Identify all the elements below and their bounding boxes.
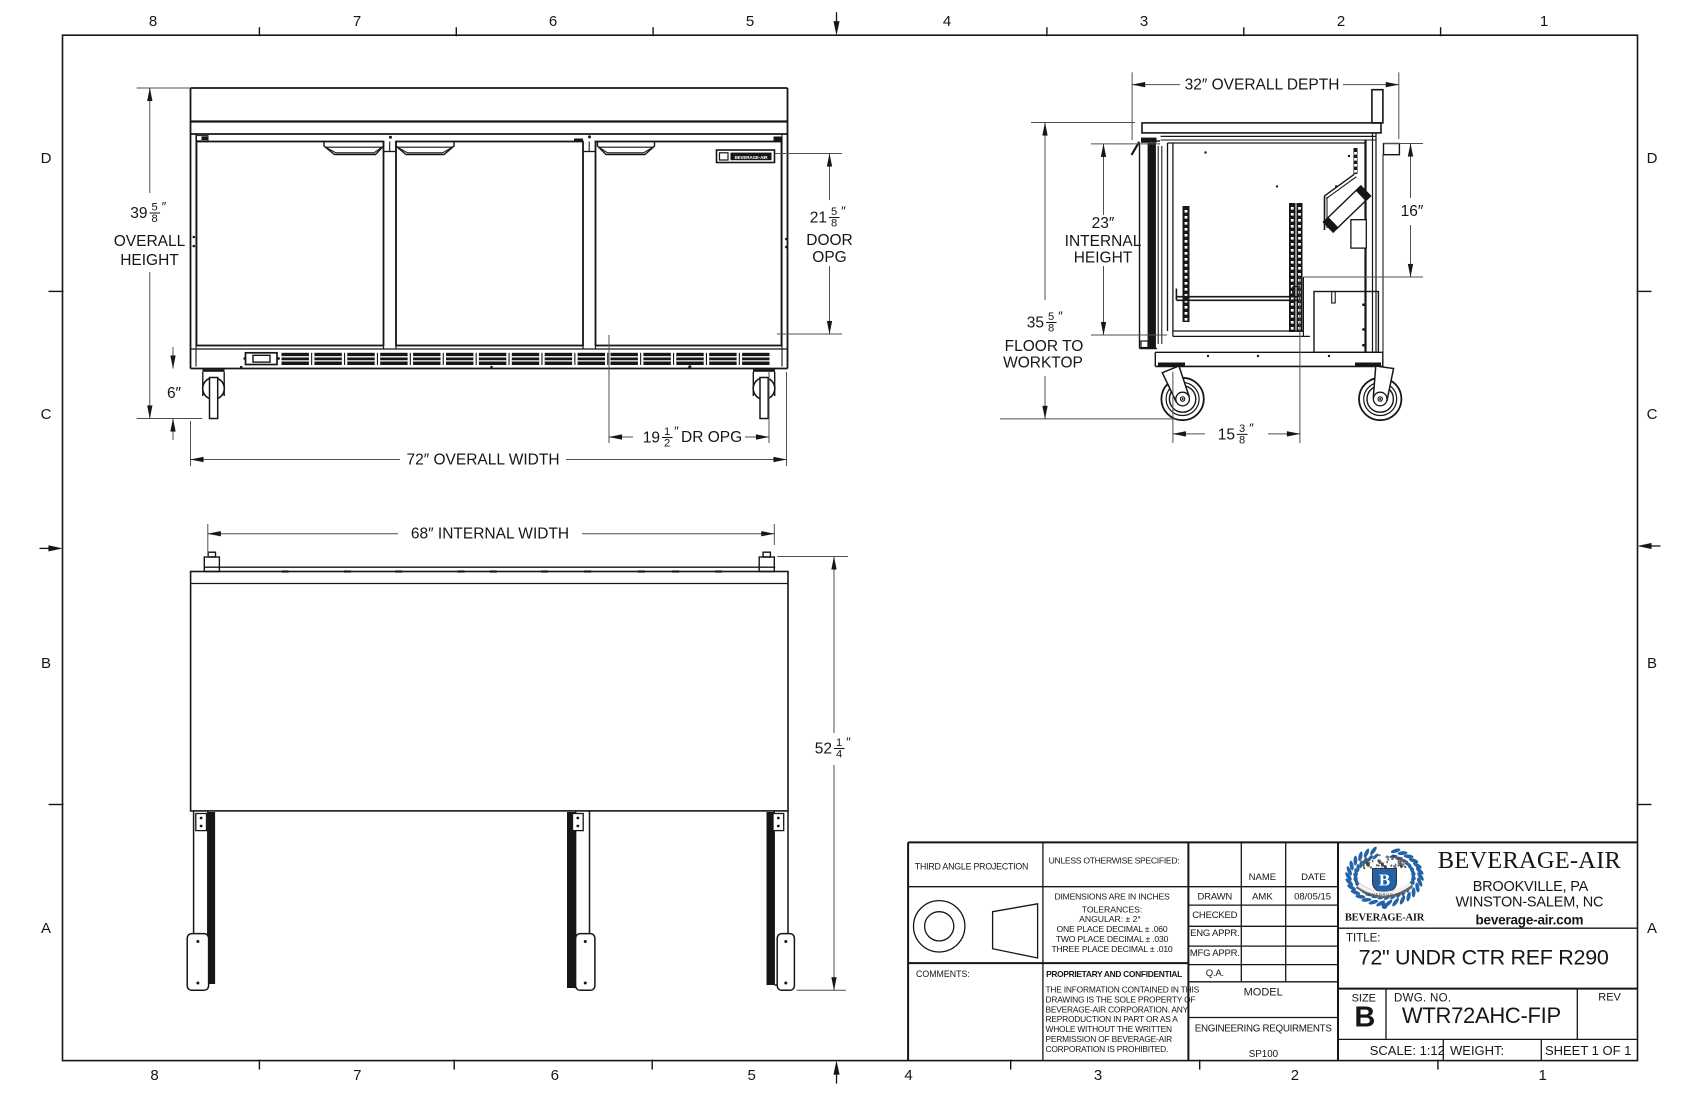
svg-text:23″: 23″ — [1092, 215, 1115, 232]
svg-text:″: ″ — [1249, 420, 1254, 435]
svg-text:35: 35 — [1027, 315, 1044, 332]
svg-text:DRAWN: DRAWN — [1198, 891, 1233, 902]
svg-text:19: 19 — [643, 430, 660, 447]
svg-text:8: 8 — [1048, 323, 1054, 335]
svg-text:COMMENTS:: COMMENTS: — [916, 969, 970, 979]
svg-text:MODEL: MODEL — [1244, 987, 1283, 999]
svg-text:72″ OVERALL WIDTH: 72″ OVERALL WIDTH — [406, 452, 559, 469]
svg-text:TOLERANCES:: TOLERANCES: — [1082, 904, 1143, 914]
svg-text:ONE PLACE DECIMAL ± .060: ONE PLACE DECIMAL ± .060 — [1057, 924, 1168, 934]
svg-text:6: 6 — [549, 13, 557, 30]
svg-text:8: 8 — [1239, 435, 1245, 447]
svg-text:THE INFORMATION CONTAINED IN T: THE INFORMATION CONTAINED IN THIS — [1046, 985, 1200, 995]
svg-text:C: C — [41, 406, 52, 423]
svg-text:ENG APPR.: ENG APPR. — [1190, 928, 1239, 939]
svg-text:4: 4 — [904, 1067, 912, 1084]
svg-text:C: C — [1647, 406, 1658, 423]
svg-text:5: 5 — [831, 206, 837, 218]
svg-text:DOOR: DOOR — [806, 232, 853, 249]
svg-text:Q.A.: Q.A. — [1206, 968, 1224, 979]
svg-text:5: 5 — [1048, 311, 1054, 323]
svg-text:7: 7 — [353, 1067, 361, 1084]
svg-text:1: 1 — [1540, 13, 1548, 30]
svg-text:WEIGHT:: WEIGHT: — [1450, 1043, 1504, 1058]
svg-text:1: 1 — [664, 426, 670, 438]
svg-text:INTERNAL: INTERNAL — [1065, 233, 1142, 250]
svg-text:SP100: SP100 — [1249, 1049, 1279, 1060]
svg-text:THIRD ANGLE PROJECTION: THIRD ANGLE PROJECTION — [915, 862, 1028, 872]
svg-text:FLOOR TO: FLOOR TO — [1005, 338, 1084, 355]
svg-text:52: 52 — [815, 741, 832, 758]
svg-text:3: 3 — [1140, 13, 1148, 30]
svg-text:2: 2 — [664, 438, 670, 450]
svg-text:B: B — [1379, 871, 1390, 890]
svg-text:ANGULAR: ± 2°: ANGULAR: ± 2° — [1079, 914, 1141, 924]
svg-text:HEIGHT: HEIGHT — [120, 252, 179, 269]
svg-text:DR OPG: DR OPG — [681, 429, 742, 446]
svg-text:5: 5 — [748, 1067, 756, 1084]
svg-text:1: 1 — [1539, 1067, 1547, 1084]
svg-text:4: 4 — [836, 749, 842, 761]
svg-text:BEVERAGE-AIR: BEVERAGE-AIR — [1438, 847, 1622, 874]
svg-text:1: 1 — [836, 737, 842, 749]
svg-text:THREE PLACE DECIMAL ± .010: THREE PLACE DECIMAL ± .010 — [1052, 944, 1173, 954]
svg-text:BEVERAGE-AIR: BEVERAGE-AIR — [1345, 913, 1425, 924]
svg-text:72" UNDR CTR REF R290: 72" UNDR CTR REF R290 — [1359, 946, 1609, 970]
svg-text:6″: 6″ — [167, 385, 182, 402]
svg-text:4: 4 — [943, 13, 951, 30]
svg-text:B: B — [1354, 1001, 1375, 1033]
svg-text:21: 21 — [810, 210, 827, 227]
svg-text:16″: 16″ — [1401, 203, 1424, 220]
svg-text:OPG: OPG — [812, 249, 846, 266]
svg-text:PROPRIETARY AND CONFIDENTIAL: PROPRIETARY AND CONFIDENTIAL — [1046, 969, 1182, 979]
svg-text:OVERALL: OVERALL — [114, 233, 186, 250]
svg-text:REV: REV — [1598, 992, 1621, 1004]
svg-text:WINSTON-SALEM, NC: WINSTON-SALEM, NC — [1456, 894, 1604, 910]
svg-text:BROOKVILLE, PA: BROOKVILLE, PA — [1473, 879, 1589, 895]
svg-text:″: ″ — [162, 199, 167, 214]
svg-text:B E V E R A G E - A I R: B E V E R A G E - A I R — [1365, 893, 1405, 897]
svg-text:CORPORATION IS PROHIBITED.: CORPORATION IS PROHIBITED. — [1046, 1044, 1169, 1054]
svg-text:″: ″ — [846, 734, 851, 749]
svg-text:B: B — [41, 655, 51, 672]
svg-text:3: 3 — [1094, 1067, 1102, 1084]
svg-text:B: B — [1647, 655, 1657, 672]
svg-text:″: ″ — [1058, 308, 1063, 323]
svg-text:WHOLE WITHOUT THE WRITTEN: WHOLE WITHOUT THE WRITTEN — [1046, 1024, 1173, 1034]
svg-text:A: A — [41, 920, 51, 937]
svg-text:″: ″ — [841, 203, 846, 218]
svg-text:5: 5 — [746, 13, 754, 30]
svg-text:PERMISSION OF BEVERAGE-AIR: PERMISSION OF BEVERAGE-AIR — [1046, 1034, 1173, 1044]
svg-text:D: D — [1647, 150, 1658, 167]
svg-text:TWO PLACE DECIMAL ± .030: TWO PLACE DECIMAL ± .030 — [1056, 934, 1169, 944]
svg-text:3: 3 — [1239, 423, 1245, 435]
svg-text:8: 8 — [149, 13, 157, 30]
svg-text:68″ INTERNAL WIDTH: 68″ INTERNAL WIDTH — [411, 526, 569, 543]
svg-text:MFG APPR.: MFG APPR. — [1190, 948, 1240, 959]
svg-text:CHECKED: CHECKED — [1192, 910, 1237, 921]
svg-text:5: 5 — [152, 202, 158, 214]
svg-text:SHEET 1 OF 1: SHEET 1 OF 1 — [1545, 1043, 1631, 1058]
svg-text:AMK: AMK — [1252, 891, 1273, 902]
svg-text:TITLE:: TITLE: — [1346, 932, 1381, 944]
svg-text:SCALE: 1:12: SCALE: 1:12 — [1370, 1043, 1445, 1058]
svg-text:2: 2 — [1337, 13, 1345, 30]
svg-text:″: ″ — [674, 423, 679, 438]
svg-text:DRAWING IS THE SOLE PROPERTY O: DRAWING IS THE SOLE PROPERTY OF — [1046, 994, 1196, 1004]
svg-text:15: 15 — [1218, 426, 1235, 443]
svg-text:6: 6 — [551, 1067, 559, 1084]
svg-text:D: D — [41, 150, 52, 167]
svg-text:WORKTOP: WORKTOP — [1003, 355, 1083, 372]
svg-text:BEVERAGE-AIR: BEVERAGE-AIR — [735, 155, 769, 160]
svg-text:08/05/15: 08/05/15 — [1294, 891, 1331, 902]
svg-text:DATE: DATE — [1301, 872, 1326, 883]
svg-text:A: A — [1647, 920, 1657, 937]
svg-text:32″ OVERALL DEPTH: 32″ OVERALL DEPTH — [1185, 77, 1340, 94]
svg-text:NAME: NAME — [1249, 872, 1276, 883]
svg-text:REPRODUCTION IN PART OR AS A: REPRODUCTION IN PART OR AS A — [1046, 1014, 1179, 1024]
svg-text:8: 8 — [150, 1067, 158, 1084]
svg-text:2: 2 — [1291, 1067, 1299, 1084]
svg-text:WTR72AHC-FIP: WTR72AHC-FIP — [1402, 1003, 1561, 1028]
svg-text:8: 8 — [831, 218, 837, 230]
svg-text:8: 8 — [152, 213, 158, 225]
svg-text:DIMENSIONS ARE IN INCHES: DIMENSIONS ARE IN INCHES — [1054, 892, 1170, 902]
svg-text:7: 7 — [353, 13, 361, 30]
svg-text:beverage-air.com: beverage-air.com — [1475, 913, 1583, 928]
svg-text:ENGINEERING REQUIRMENTS: ENGINEERING REQUIRMENTS — [1195, 1023, 1333, 1034]
svg-text:HEIGHT: HEIGHT — [1074, 250, 1133, 267]
svg-text:BEVERAGE-AIR CORPORATION. ANY: BEVERAGE-AIR CORPORATION. ANY — [1046, 1004, 1189, 1014]
svg-text:UNLESS OTHERWISE SPECIFIED:: UNLESS OTHERWISE SPECIFIED: — [1049, 856, 1180, 866]
svg-text:39: 39 — [130, 205, 147, 222]
